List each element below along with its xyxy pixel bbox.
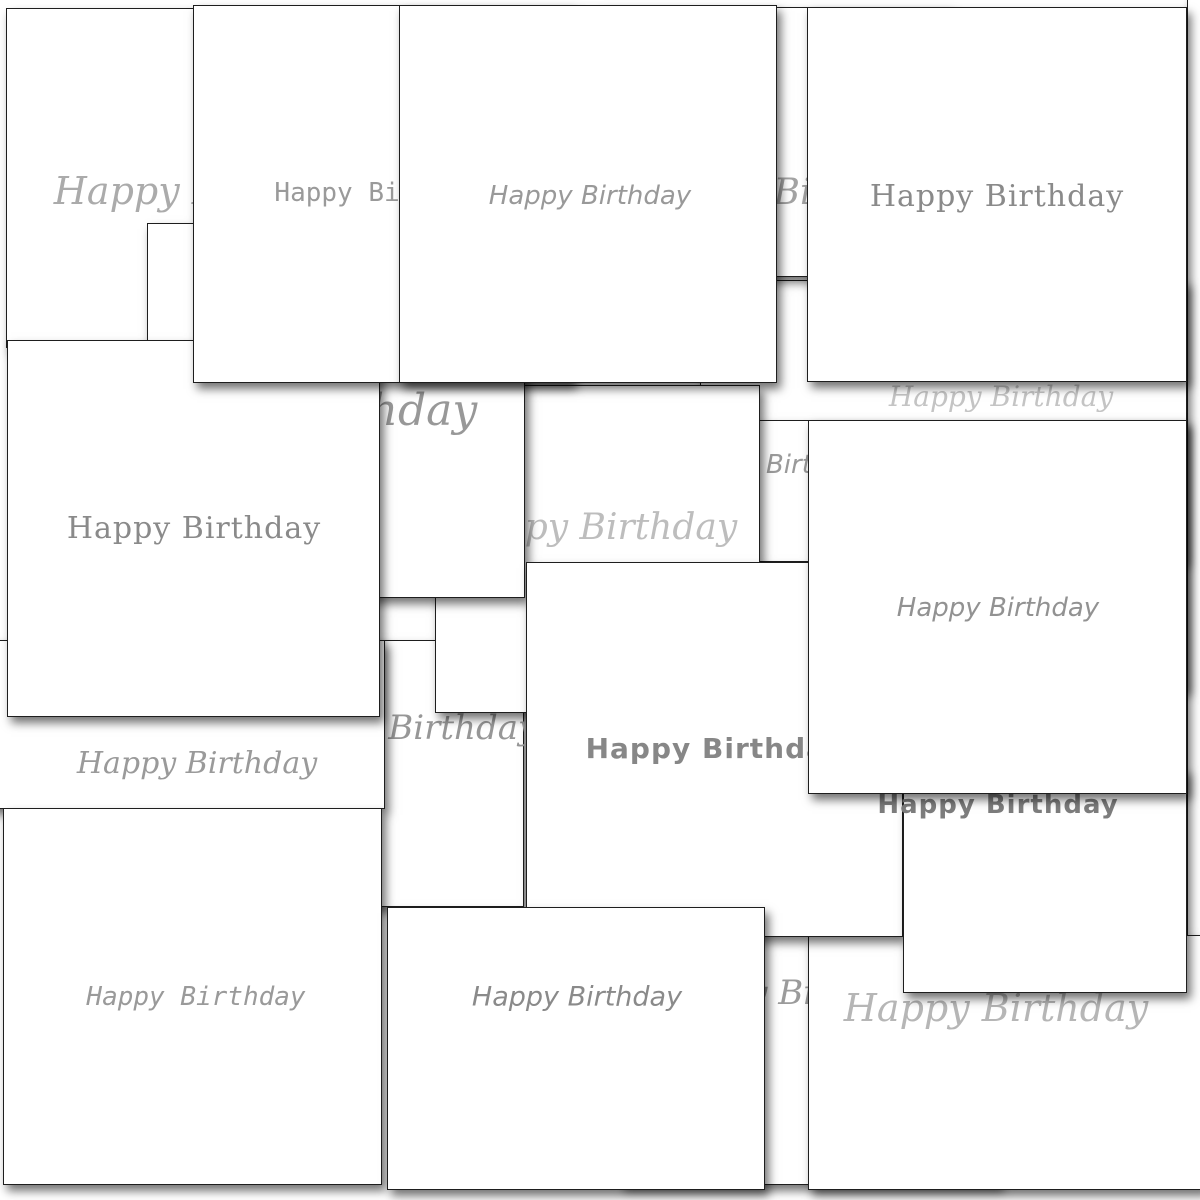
card-serif-top-right: Happy Birthday xyxy=(807,7,1187,382)
card-print-top-center: Happy Birthday xyxy=(399,5,777,383)
card-typewriter-bottom-left-greeting-text: Happy Birthday xyxy=(86,984,305,1010)
card-signature-script-band-greeting-text: Happy Birthday xyxy=(77,749,317,779)
birthday-cards-collage: Happy BirthdayHappy BirthdayHappy Birthd… xyxy=(0,0,1200,1200)
card-thin-script-bottom-right-greeting-text: Happy Birthday xyxy=(844,989,1148,1027)
card-print-bottom-center: Happy Birthday xyxy=(387,907,765,1190)
card-print-right-middle-greeting-text: Happy Birthday xyxy=(897,595,1099,621)
card-serif-top-right-greeting-text: Happy Birthday xyxy=(870,182,1124,212)
card-print-top-center-greeting-text: Happy Birthday xyxy=(489,183,691,209)
card-serif-left: Happy Birthday xyxy=(7,340,380,717)
card-faded-script-band-greeting-text: Happy Birthday xyxy=(889,383,1113,411)
card-bold-sans-bottom-right-greeting-text: Happy Birthday xyxy=(877,792,1118,818)
card-bold-sans-middle-greeting-text: Happy Birthday xyxy=(586,735,845,763)
card-serif-left-greeting-text: Happy Birthday xyxy=(67,514,321,544)
card-bold-sans-bottom-right: Happy Birthday xyxy=(903,768,1187,993)
card-print-right-middle: Happy Birthday xyxy=(808,420,1187,794)
card-print-bottom-center-greeting-text: Happy Birthday xyxy=(472,984,682,1011)
card-typewriter-bottom-left: Happy Birthday xyxy=(3,808,382,1185)
card-right-edge-sliver xyxy=(1187,0,1200,945)
